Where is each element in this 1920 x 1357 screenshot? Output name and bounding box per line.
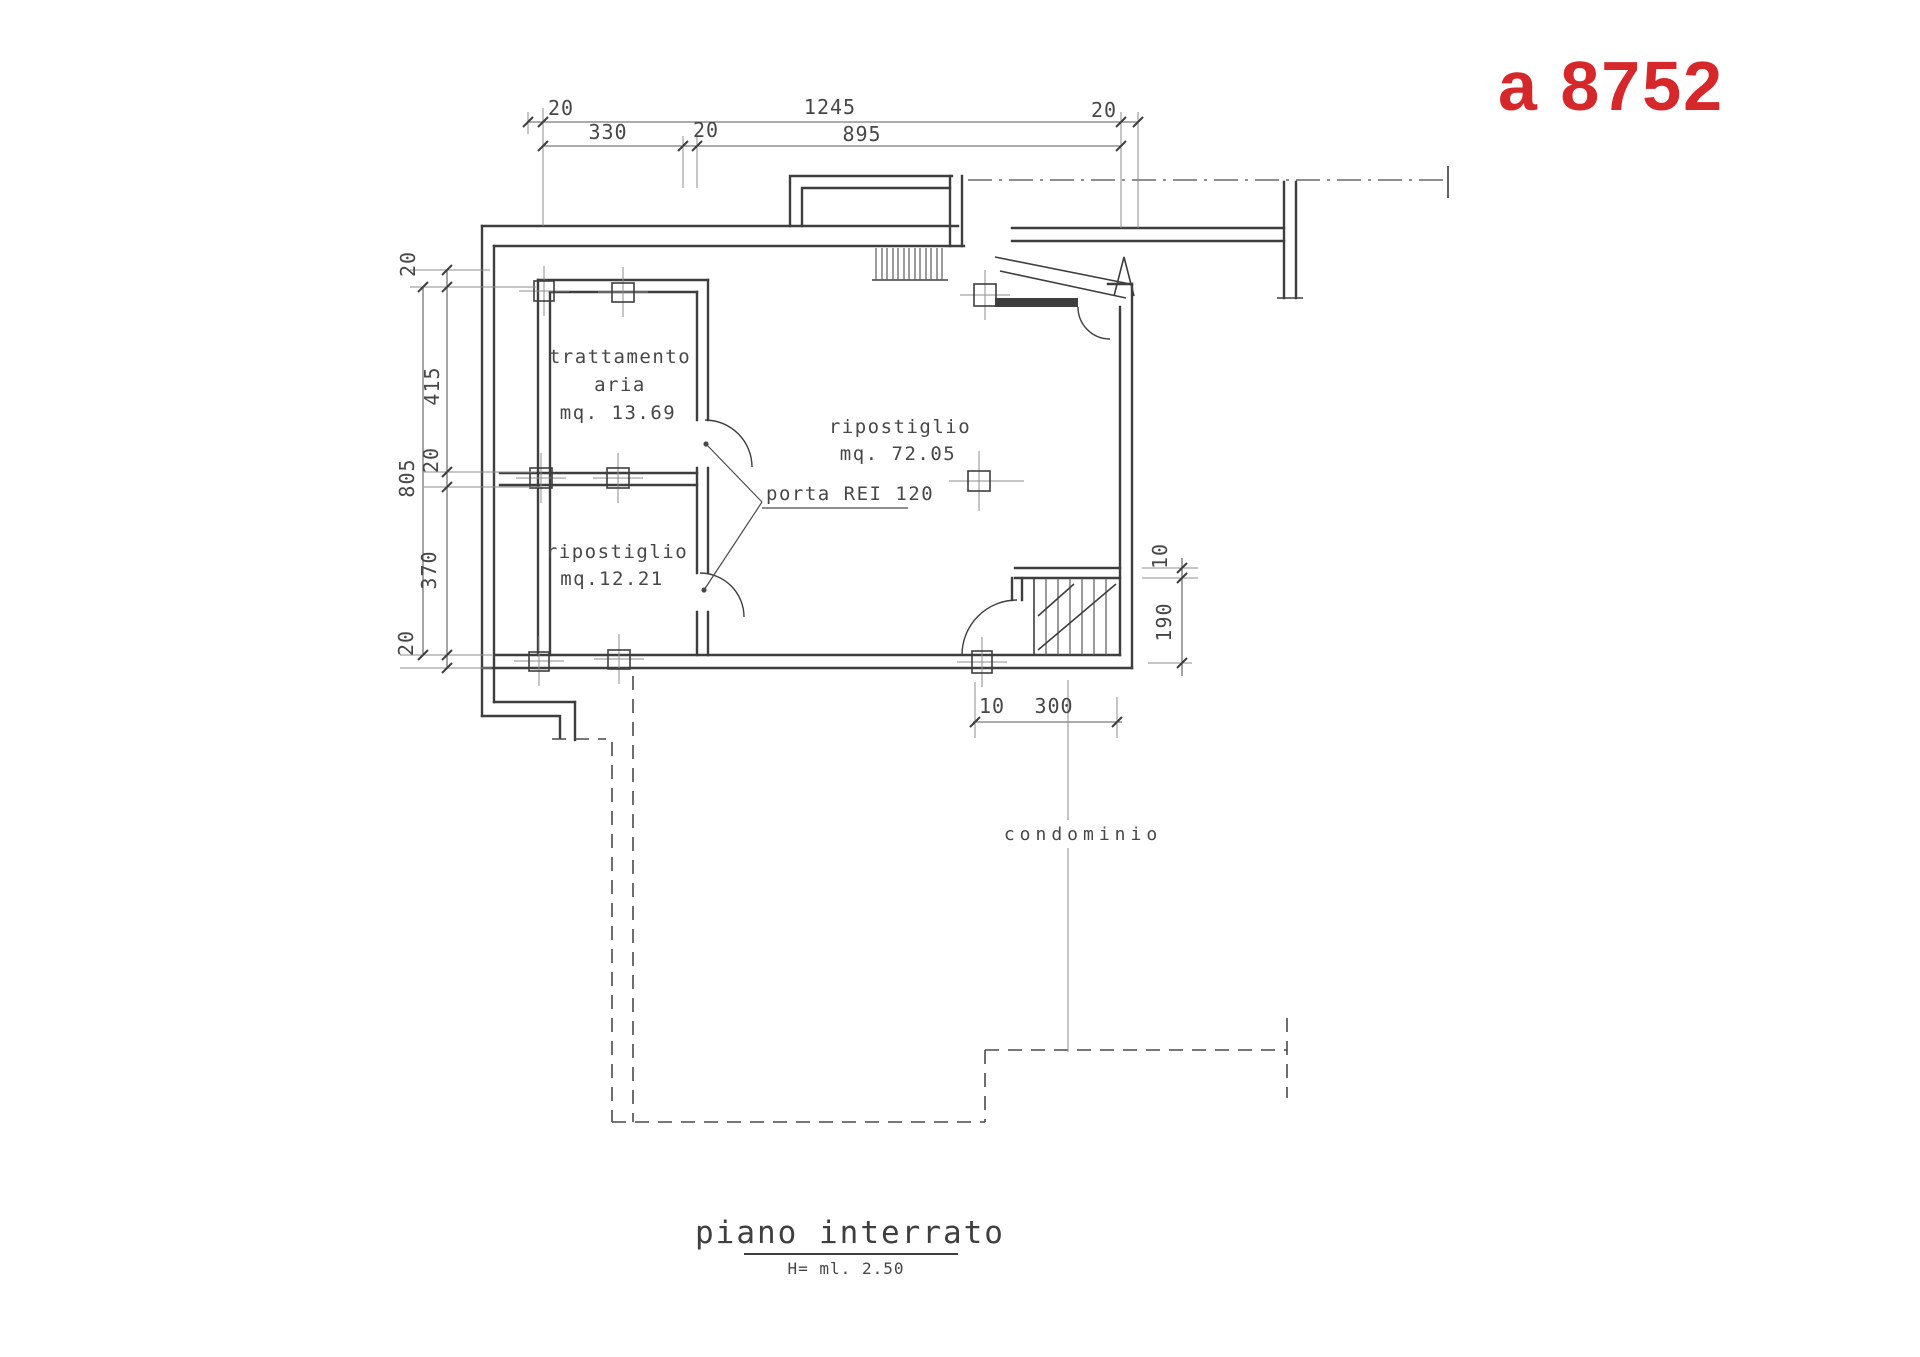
plan-height-note: H= ml. 2.50	[788, 1259, 905, 1278]
floor-plan: 20 1245 20 330 20 895 20 415 20 805 370 …	[0, 0, 1920, 1357]
room-storage-large-name: ripostiglio	[829, 416, 971, 438]
dimensions-bottom: 10 300	[970, 680, 1122, 1052]
room-storage-large-area: mq. 72.05	[840, 443, 956, 465]
dim-left-370: 370	[417, 550, 441, 589]
room-storage-small-name: ripostiglio	[546, 541, 688, 563]
room-storage-small-area: mq.12.21	[560, 568, 664, 590]
dimensions-left: 20 415 20 805 370 20	[394, 251, 540, 673]
dim-bottom-10: 10	[979, 694, 1005, 718]
dim-left-415: 415	[420, 366, 444, 405]
dimensions-top: 20 1245 20 330 20 895	[523, 95, 1143, 228]
entrance-wall	[995, 298, 1078, 307]
leader-dot	[703, 441, 708, 446]
plan-title: piano interrato	[695, 1215, 1005, 1251]
dim-left-20-top: 20	[396, 251, 420, 277]
columns	[514, 266, 1024, 687]
dim-top-20-right: 20	[1091, 98, 1117, 122]
stair-door-arc	[962, 600, 1017, 655]
dimensions-right: 10 190	[1142, 543, 1198, 676]
room-air-treatment-area: mq. 13.69	[560, 402, 676, 424]
external-stair	[872, 248, 948, 280]
dim-left-805: 805	[395, 458, 419, 497]
property-dashed-lines	[552, 676, 1287, 1122]
dim-right-190: 190	[1152, 602, 1176, 641]
dim-bottom-300: 300	[1034, 694, 1073, 718]
fire-door-upper-arc	[705, 420, 752, 467]
dim-left-20-bottom: 20	[394, 630, 418, 656]
drawing-sheet: 20 1245 20 330 20 895 20 415 20 805 370 …	[0, 0, 1920, 1357]
partition-walls	[500, 280, 1120, 655]
room-air-treatment-name-2: aria	[594, 374, 646, 396]
dim-top-1245: 1245	[804, 95, 856, 119]
dim-top-20-mid: 20	[693, 118, 719, 142]
fire-door-label: porta REI 120	[766, 483, 934, 505]
dim-top-20-left: 20	[548, 96, 574, 120]
dim-top-895: 895	[842, 122, 881, 146]
stair-steps	[1046, 578, 1106, 655]
dim-left-20-mid: 20	[419, 447, 443, 473]
leader-dot	[701, 587, 706, 592]
doors	[700, 307, 1110, 655]
entrance-door-arc	[1078, 307, 1110, 339]
room-air-treatment-name-1: trattamento	[549, 346, 691, 368]
common-area-label: condominio	[1004, 824, 1162, 845]
stair-diagonal	[1038, 584, 1116, 650]
axis-line	[968, 166, 1448, 198]
interior-stair	[1034, 578, 1116, 655]
title-block: piano interrato H= ml. 2.50	[695, 1215, 1005, 1278]
fire-door-lower-arc	[700, 573, 744, 617]
dim-right-10: 10	[1148, 543, 1172, 569]
sheet-code-stamp: a 8752	[1498, 47, 1724, 125]
entry-ramp	[995, 257, 1134, 298]
dim-top-330: 330	[588, 120, 627, 144]
